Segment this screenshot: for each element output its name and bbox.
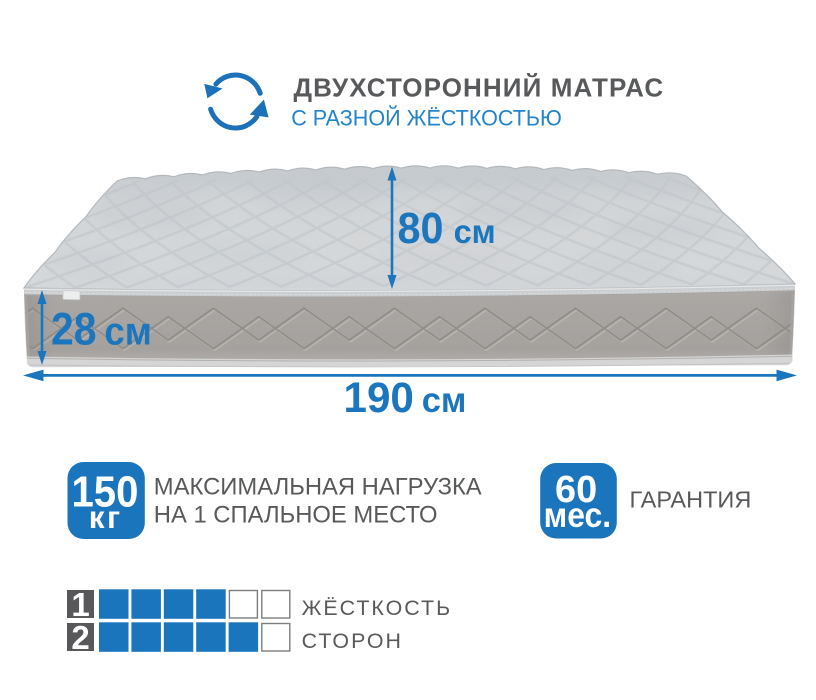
svg-text:см: см [422, 381, 467, 420]
svg-text:1: 1 [71, 586, 89, 623]
svg-text:ДВУХСТОРОННИЙ МАТРАС: ДВУХСТОРОННИЙ МАТРАС [294, 73, 665, 103]
svg-text:мес.: мес. [544, 496, 612, 535]
svg-text:кг: кг [89, 499, 123, 535]
svg-text:СТОРОН: СТОРОН [302, 629, 403, 653]
svg-text:80: 80 [398, 204, 444, 252]
svg-text:ЖЁСТКОСТЬ: ЖЁСТКОСТЬ [302, 596, 453, 620]
svg-text:2: 2 [71, 619, 89, 656]
svg-text:НА 1 СПАЛЬНОЕ МЕСТО: НА 1 СПАЛЬНОЕ МЕСТО [154, 502, 438, 529]
svg-text:ГАРАНТИЯ: ГАРАНТИЯ [630, 487, 752, 513]
svg-text:С РАЗНОЙ ЖЁСТКОСТЬЮ: С РАЗНОЙ ЖЁСТКОСТЬЮ [291, 105, 562, 131]
svg-text:МАКСИМАЛЬНАЯ НАГРУЗКА: МАКСИМАЛЬНАЯ НАГРУЗКА [154, 474, 482, 501]
svg-text:28: 28 [51, 305, 97, 355]
svg-text:190: 190 [344, 374, 414, 421]
svg-text:см: см [104, 310, 151, 353]
svg-text:см: см [454, 212, 496, 250]
